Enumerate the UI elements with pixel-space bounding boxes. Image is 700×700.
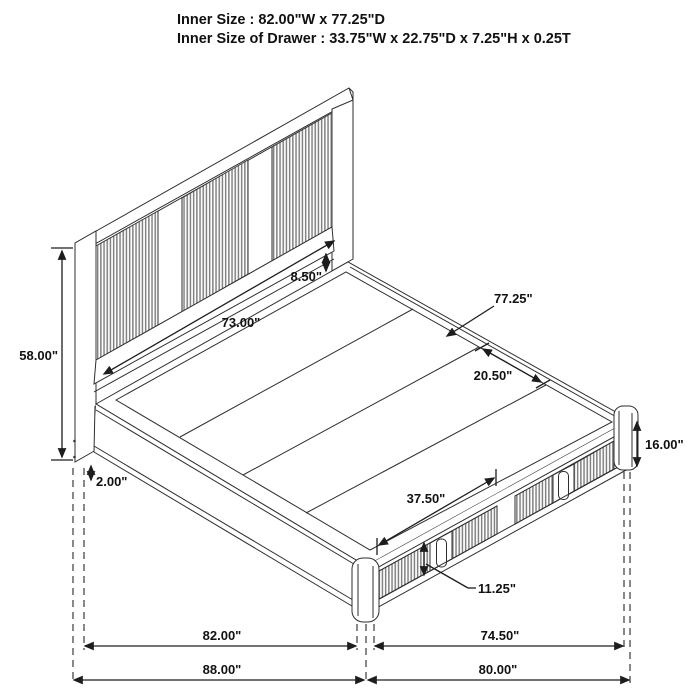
right-corner-post: [614, 406, 638, 470]
foot-corner-post: [352, 558, 379, 622]
diagram-canvas: 58.00" 2.00" 73.00" 8.50" 77.25" 20.50": [0, 0, 700, 700]
dim-label-platform-depth: 77.25": [494, 291, 533, 306]
dim-label-headboard-height: 58.00": [19, 348, 58, 363]
platform-deck: [96, 262, 630, 566]
dim-label-drawer-width: 37.50": [407, 491, 446, 506]
bed-dimension-diagram: 58.00" 2.00" 73.00" 8.50" 77.25" 20.50": [0, 0, 700, 700]
dim-label-frame-height: 16.00": [645, 437, 684, 452]
header-inner-size: Inner Size : 82.00"W x 77.25"D: [177, 12, 385, 28]
headboard-right-post: [332, 100, 353, 271]
dim-label-drawer-height: 11.25": [478, 581, 516, 596]
header-specs: Inner Size : 82.00"W x 77.25"D Inner Siz…: [177, 12, 571, 47]
dim-frame-height: 16.00": [637, 422, 684, 466]
header-drawer-size: Inner Size of Drawer : 33.75"W x 22.75"D…: [177, 31, 571, 47]
dim-label-floor-gap: 2.00": [96, 474, 127, 489]
post-screw-dot: [73, 456, 76, 459]
dim-bottom-inner-right: 74.50": [375, 628, 623, 646]
dim-headboard-height: 58.00": [19, 248, 73, 460]
post-screw-dot: [73, 440, 76, 443]
dim-floor-gap: 2.00": [91, 466, 127, 489]
dim-label-deck-gap: 8.50": [291, 269, 322, 284]
dim-label-bottom-overall-right: 80.00": [479, 662, 518, 677]
dim-bottom-overall-left: 88.00": [74, 662, 364, 680]
headboard-left-post: [75, 231, 96, 462]
deck-surface: [96, 262, 630, 566]
dim-label-headboard-inner-width: 73.00": [222, 315, 261, 330]
dim-label-slat-section: 20.50": [474, 368, 513, 383]
dim-label-bottom-inner-right: 74.50": [481, 628, 520, 643]
dim-label-bottom-inner-left: 82.00": [203, 628, 242, 643]
dim-bottom-inner-left: 82.00": [85, 628, 356, 646]
dim-label-bottom-overall-left: 88.00": [203, 662, 242, 677]
dim-bottom-overall-right: 80.00": [368, 662, 629, 680]
